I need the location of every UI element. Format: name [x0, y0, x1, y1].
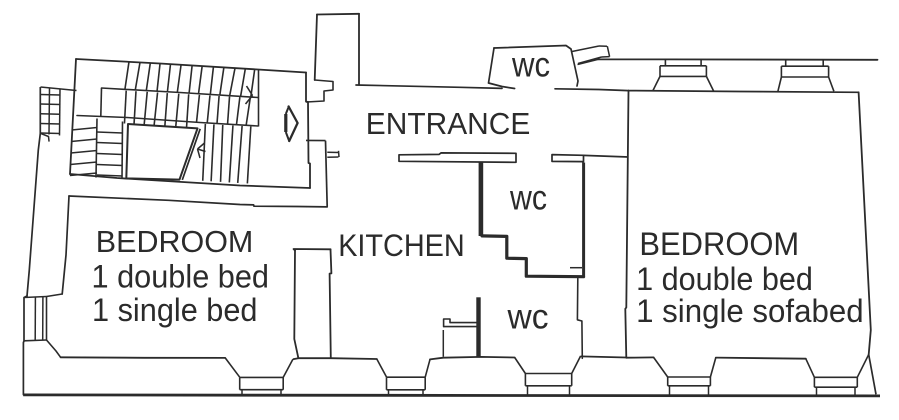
svg-text:1 single sofabed: 1 single sofabed: [636, 292, 864, 329]
svg-text:wc: wc: [509, 179, 547, 218]
svg-text:wc: wc: [511, 45, 550, 84]
svg-text:wc: wc: [506, 298, 548, 337]
svg-text:1 double bed: 1 double bed: [92, 258, 270, 295]
svg-text:ENTRANCE: ENTRANCE: [366, 107, 531, 141]
svg-text:BEDROOM: BEDROOM: [639, 226, 799, 263]
svg-text:1 single bed: 1 single bed: [92, 292, 258, 329]
svg-text:KITCHEN: KITCHEN: [338, 229, 465, 264]
svg-text:BEDROOM: BEDROOM: [96, 225, 254, 259]
